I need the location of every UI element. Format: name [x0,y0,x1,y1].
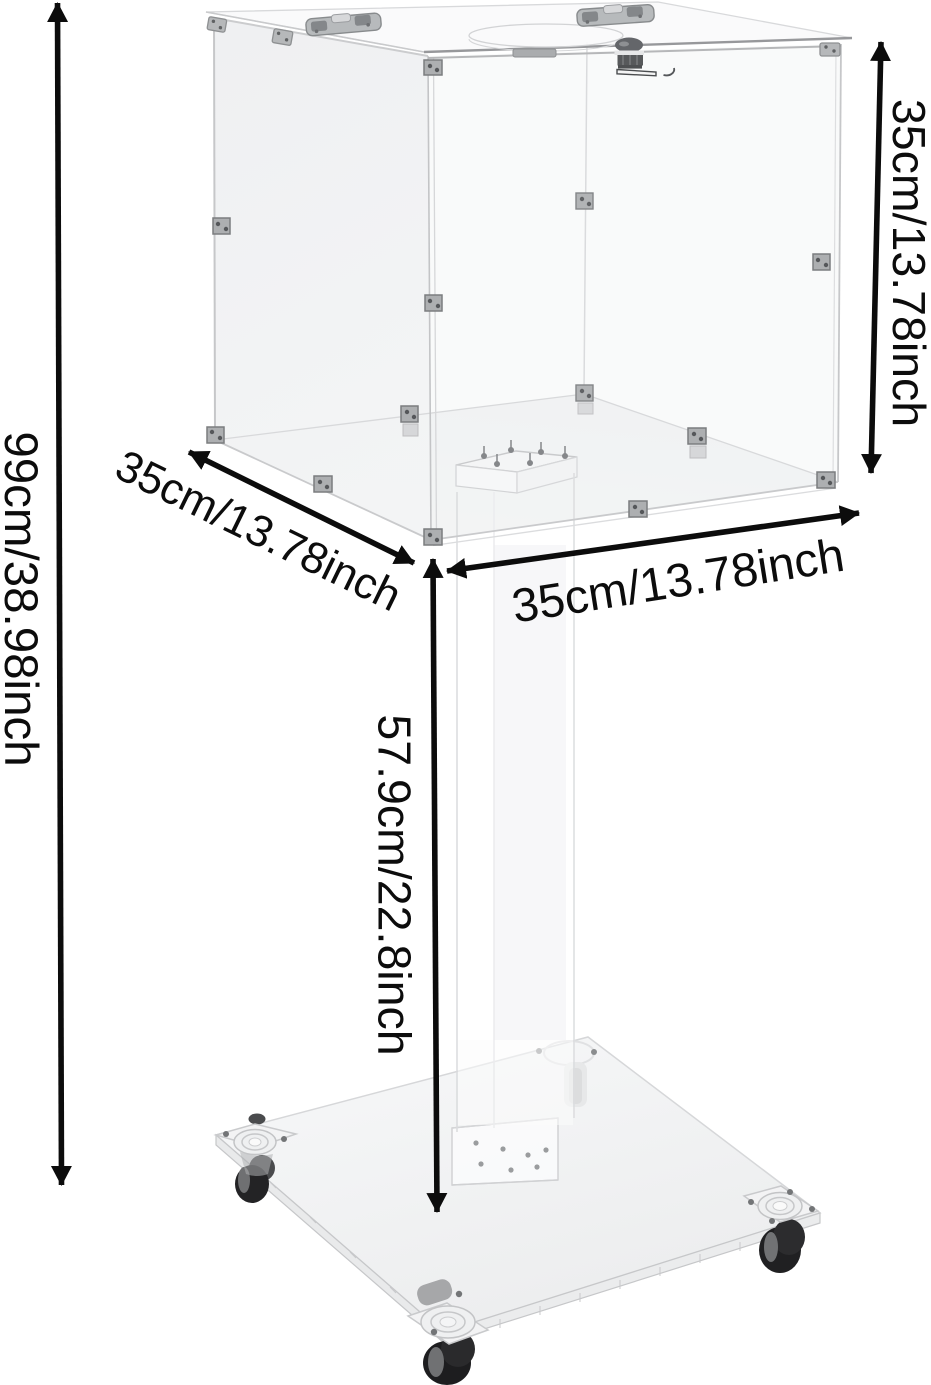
svg-text:99cm/38.98inch: 99cm/38.98inch [0,431,47,766]
svg-text:57.9cm/22.8inch: 57.9cm/22.8inch [369,714,421,1055]
svg-text:35cm/13.78inch: 35cm/13.78inch [883,99,931,427]
